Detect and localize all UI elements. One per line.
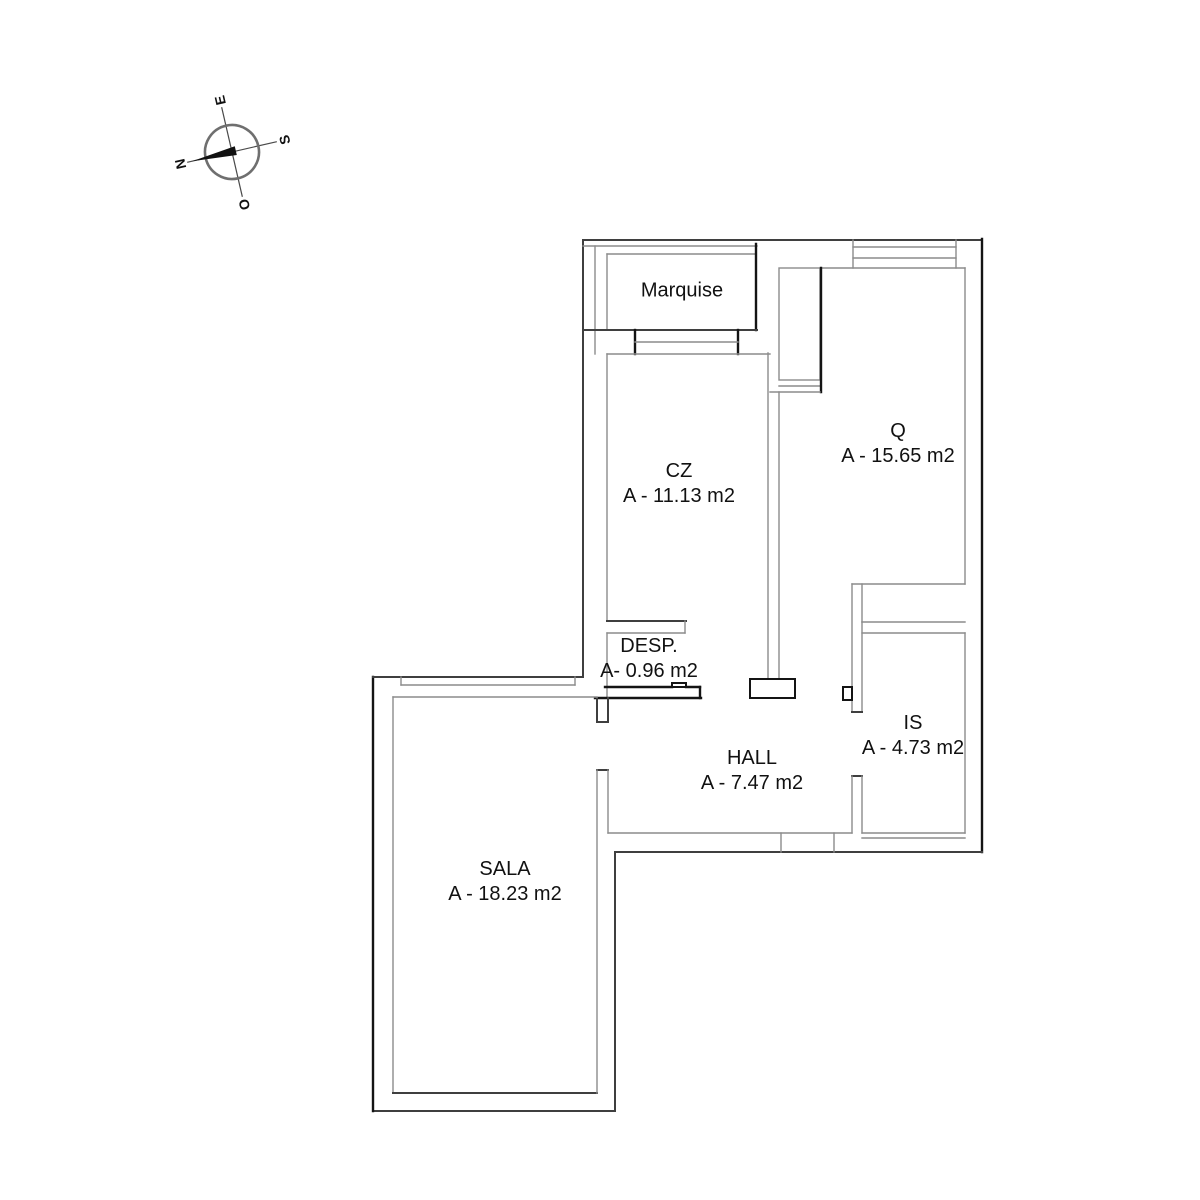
compass-label-north: N (171, 157, 189, 170)
room-label-desp: DESP. A- 0.96 m2 (600, 634, 698, 684)
room-area: A - 4.73 m2 (862, 736, 964, 761)
room-label-cz: CZ A - 11.13 m2 (623, 459, 735, 509)
room-name: Marquise (641, 279, 723, 304)
room-area: A- 0.96 m2 (600, 659, 698, 684)
room-area: A - 7.47 m2 (701, 771, 803, 796)
room-area: A - 11.13 m2 (623, 484, 735, 509)
room-name: Q (841, 419, 954, 444)
wardrobe (779, 268, 820, 380)
compass-label-south: S (276, 134, 294, 147)
compass-needle (191, 146, 237, 165)
hall-walls (608, 833, 852, 852)
room-name: DESP. (600, 634, 698, 659)
room-label-q: Q A - 15.65 m2 (841, 419, 954, 469)
room-name: SALA (448, 857, 561, 882)
room-name: CZ (623, 459, 735, 484)
room-label-sala: SALA A - 18.23 m2 (448, 857, 561, 907)
room-label-hall: HALL A - 7.47 m2 (701, 746, 803, 796)
floor-plan-canvas: E S O N (0, 0, 1200, 1200)
room-label-marquise: Marquise (641, 279, 723, 304)
room-name: HALL (701, 746, 803, 771)
compass-label-west: O (235, 197, 253, 211)
room-label-is: IS A - 4.73 m2 (862, 711, 964, 761)
q-walls (770, 240, 965, 584)
room-name: IS (862, 711, 964, 736)
compass-label-east: E (211, 94, 229, 107)
floor-plan-drawing: E S O N (0, 0, 1200, 1200)
room-area: A - 18.23 m2 (448, 882, 561, 907)
compass-rose-icon: E S O N (160, 82, 306, 224)
door-hinge (843, 687, 852, 700)
room-area: A - 15.65 m2 (841, 444, 954, 469)
wall-pier (750, 679, 795, 698)
